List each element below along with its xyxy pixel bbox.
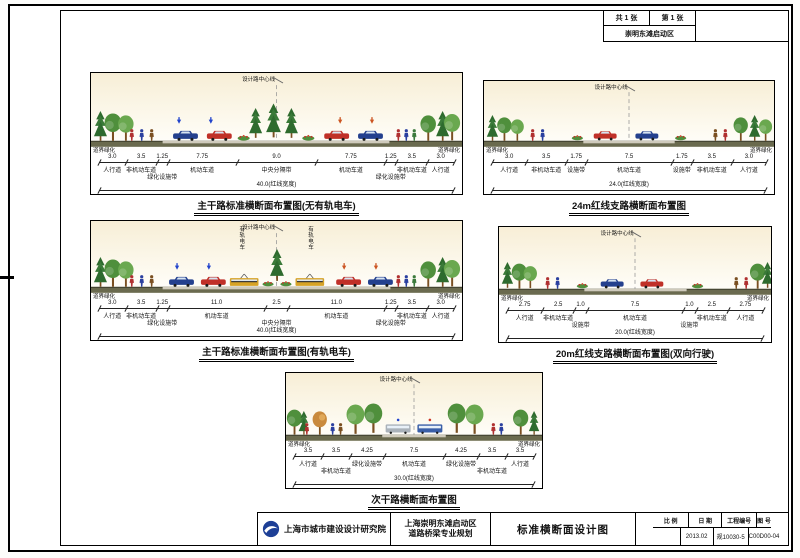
vehicles-right	[296, 274, 393, 287]
dim-label: 设施带	[673, 165, 691, 174]
dim-label: 设施带	[567, 165, 585, 174]
dim-segment: 3.0人行道	[427, 300, 454, 325]
dim-segment: 1.0设施带	[683, 302, 696, 327]
title-block: 上海市城市建设设计研究院 上海崇明东滩启动区 道路桥梁专业规划 标准横断面设计图…	[257, 512, 789, 546]
dim-segment: 4.25绿化设施带	[444, 448, 478, 473]
dim-value: 2.5	[708, 302, 716, 308]
total-dimension-line	[99, 190, 454, 191]
dim-label: 非机动车道	[543, 313, 573, 322]
company-cell: 上海市城市建设设计研究院	[258, 513, 391, 545]
total-width-label: 24.0(红线宽度)	[609, 179, 649, 188]
tram-label-left: 有轨电车	[238, 226, 244, 250]
dim-label: 机动车道	[339, 165, 363, 174]
dim-label: 人行道	[103, 311, 121, 320]
section-main-road-with-tram: 设计路中心线 有轨电车 有轨电车 道界绿化 道界绿化 3.0人行道3.5非机动车…	[90, 220, 463, 362]
dim-value: 1.75	[570, 154, 582, 160]
dim-label: 绿化设施带	[446, 459, 476, 468]
edge-greening-label-right: 道界绿化	[438, 292, 460, 300]
dim-segment: 3.5非机动车道	[322, 448, 350, 473]
dim-label: 非机动车道	[531, 165, 561, 174]
corner-empty-cell	[696, 10, 789, 42]
dim-value: 3.5	[408, 300, 416, 306]
dim-value: 3.0	[108, 300, 116, 306]
area-name-cell: 崇明东滩启动区	[604, 26, 695, 41]
total-width-row: 40.0(红线宽度)	[99, 179, 454, 192]
dimension-row: 3.0人行道3.5非机动车道1.75设施带7.5机动车道1.75设施带3.5非机…	[492, 154, 766, 179]
trees-right	[420, 111, 460, 141]
median-planting	[263, 249, 292, 286]
facility-strip-planting	[692, 283, 703, 288]
dim-segment: 3.5非机动车道	[396, 300, 427, 325]
centerline-label: 设计路中心线	[601, 229, 634, 237]
dim-label: 人行道	[432, 311, 450, 320]
edge-greening-label-right: 道界绿化	[518, 440, 540, 448]
total-width-label: 40.0(红线宽度)	[257, 179, 297, 188]
dim-value: 3.5	[516, 448, 524, 454]
dim-label: 非机动车道	[397, 165, 427, 174]
edge-greening-label-left: 道界绿化	[501, 294, 523, 302]
dim-value: 1.0	[576, 302, 584, 308]
diagram-box: 设计路中心线 道界绿化 道界绿化 2.75人行道2.5非机动车道1.0设施带7.…	[498, 226, 772, 343]
diagram-box: 设计路中心线 道界绿化 道界绿化 3.0人行道3.5非机动车道1.25绿化设施带…	[90, 72, 463, 195]
dim-segment: 3.5非机动车道	[396, 154, 427, 179]
facility-strip-planting	[675, 135, 686, 140]
scale-value	[645, 528, 681, 545]
section-title: 24m红线支路横断面布置图	[569, 198, 689, 216]
total-width-label: 20.0(红线宽度)	[615, 327, 655, 336]
pedestrians-right	[713, 129, 727, 141]
total-width-row: 20.0(红线宽度)	[507, 327, 763, 340]
dim-label: 人行道	[511, 459, 529, 468]
dim-segment: 1.25绿化设施带	[385, 300, 396, 325]
edge-greening-label-right: 道界绿化	[438, 146, 460, 154]
project-no-label: 工程编号	[722, 513, 757, 527]
dim-segment: 1.75设施带	[566, 154, 586, 179]
diagram-box: 设计路中心线 有轨电车 有轨电车 道界绿化 道界绿化 3.0人行道3.5非机动车…	[90, 220, 463, 341]
dim-segment: 4.25绿化设施带	[350, 448, 384, 473]
dim-value: 7.5	[631, 302, 639, 308]
dim-segment: 9.0中央分隔带	[237, 154, 317, 179]
section-title: 主干路标准横断面布置图(有轨电车)	[199, 344, 354, 362]
scale-label: 比 例	[653, 513, 689, 527]
dim-segment: 2.75人行道	[728, 302, 763, 327]
pedestrians-left	[530, 129, 544, 141]
edge-greening-label-left: 道界绿化	[93, 146, 115, 154]
centerline-label: 设计路中心线	[380, 375, 413, 383]
facility-strip-planting	[577, 283, 588, 288]
trees-right	[734, 115, 773, 141]
cross-section-illustration	[286, 373, 542, 447]
trees-right	[420, 257, 460, 287]
dim-label: 绿化设施带	[352, 459, 382, 468]
dimension-row: 3.0人行道3.5非机动车道1.25绿化设施带11.0机动车道2.5中央分隔带1…	[99, 300, 454, 325]
cross-section-illustration	[499, 227, 771, 301]
dim-segment: 3.0人行道	[427, 154, 454, 179]
dim-value: 2.5	[272, 300, 280, 306]
dim-label: 非机动车道	[697, 165, 727, 174]
dim-value: 4.25	[455, 448, 467, 454]
dim-value: 1.0	[685, 302, 693, 308]
facility-strip-planting	[572, 135, 583, 140]
dim-value: 3.5	[488, 448, 496, 454]
project-cell: 上海崇明东滩启动区 道路桥梁专业规划	[391, 513, 491, 545]
pedestrians-right	[734, 277, 748, 289]
dim-value: 3.0	[505, 154, 513, 160]
sheet-number-cell: 第 1 张	[650, 11, 695, 25]
edge-greening-label-right: 道界绿化	[747, 294, 769, 302]
drawing-no-label: 图 号	[757, 513, 771, 527]
dim-value: 3.5	[408, 154, 416, 160]
vehicles-left	[173, 131, 232, 141]
dim-label: 机动车道	[205, 311, 229, 320]
dim-segment: 11.0机动车道	[288, 300, 386, 325]
drawing-info-table: 比 例 日 期 工程编号 图 号 2013.02 规10030-5 C00D00…	[636, 513, 788, 545]
dim-label: 机动车道	[402, 459, 426, 468]
dim-value: 3.5	[137, 154, 145, 160]
dim-value: 7.5	[410, 448, 418, 454]
dim-segment: 3.0人行道	[99, 300, 126, 325]
dim-label: 人行道	[736, 313, 754, 322]
cross-section-illustration	[484, 81, 774, 153]
trees-right	[513, 410, 539, 435]
dim-label: 人行道	[299, 459, 317, 468]
dim-value: 3.0	[437, 300, 445, 306]
tram-label-right: 有轨电车	[306, 226, 312, 250]
dim-segment: 2.5非机动车道	[696, 302, 728, 327]
dim-value: 2.5	[554, 302, 562, 308]
total-dimension-line	[294, 484, 534, 485]
pedestrians-left	[130, 275, 154, 287]
company-name: 上海市城市建设设计研究院	[284, 523, 386, 535]
vehicles-left	[169, 274, 258, 287]
total-width-row: 40.0(红线宽度)	[99, 325, 454, 338]
scene: 设计路中心线 道界绿化 道界绿化	[286, 373, 542, 447]
dim-label: 人行道	[103, 165, 121, 174]
trees-right	[750, 262, 771, 289]
green-strip-trees-right	[448, 404, 484, 434]
corner-sheet-table: 共 1 张 第 1 张 崇明东滩启动区	[603, 10, 789, 42]
cross-section-illustration	[91, 221, 462, 299]
dim-segment: 3.0人行道	[492, 154, 526, 179]
dim-segment: 1.25绿化设施带	[157, 154, 168, 179]
section-main-road-no-tram: 设计路中心线 道界绿化 道界绿化 3.0人行道3.5非机动车道1.25绿化设施带…	[90, 72, 463, 216]
date-value: 2013.02	[681, 528, 714, 545]
dim-segment: 3.5非机动车道	[692, 154, 732, 179]
company-logo-icon	[262, 520, 280, 538]
dim-value: 11.0	[331, 300, 342, 306]
trees-left	[94, 257, 134, 287]
dim-value: 3.0	[437, 154, 445, 160]
centerline-label: 设计路中心线	[242, 75, 275, 83]
dim-value: 7.75	[345, 154, 357, 160]
dim-segment: 2.75人行道	[507, 302, 542, 327]
dim-value: 3.5	[137, 300, 145, 306]
section-branch-24m: 设计路中心线 道界绿化 道界绿化 3.0人行道3.5非机动车道1.75设施带7.…	[483, 80, 775, 216]
dim-segment: 3.5人行道	[294, 448, 322, 473]
cross-section-illustration	[91, 73, 462, 153]
dim-value: 2.75	[740, 302, 752, 308]
dim-segment: 1.25绿化设施带	[385, 154, 396, 179]
dim-value: 1.75	[676, 154, 688, 160]
dim-value: 3.0	[745, 154, 753, 160]
dim-segment: 11.0机动车道	[168, 300, 266, 325]
dim-segment: 1.75设施带	[672, 154, 692, 179]
vehicles	[601, 279, 664, 288]
dim-segment: 2.5中央分隔带	[265, 300, 287, 325]
dim-label: 非机动车道	[697, 313, 727, 322]
edge-greening-label-left: 道界绿化	[486, 146, 508, 154]
edge-greening-label-right: 道界绿化	[750, 146, 772, 154]
dim-label: 非机动车道	[397, 311, 427, 320]
dim-label: 机动车道	[190, 165, 214, 174]
dim-segment: 3.5人行道	[506, 448, 534, 473]
section-title: 20m红线支路横断面布置图(双向行驶)	[553, 346, 717, 364]
scene: 设计路中心线 道界绿化 道界绿化	[91, 73, 462, 153]
dim-value: 3.5	[542, 154, 550, 160]
trees-left	[94, 111, 134, 141]
scene: 设计路中心线 有轨电车 有轨电车 道界绿化 道界绿化	[91, 221, 462, 299]
pedestrians-left	[130, 129, 154, 141]
pedestrians-right	[396, 129, 416, 141]
dim-value: 4.25	[361, 448, 373, 454]
dimension-row: 3.0人行道3.5非机动车道1.25绿化设施带7.75机动车道9.0中央分隔带7…	[99, 154, 454, 179]
section-title: 次干路横断面布置图	[368, 492, 460, 510]
total-width-row: 30.0(红线宽度)	[294, 473, 534, 486]
diagram-box: 设计路中心线 道界绿化 道界绿化 3.0人行道3.5非机动车道1.75设施带7.…	[483, 80, 775, 195]
binding-mark	[0, 276, 14, 279]
total-sheets-cell: 共 1 张	[604, 11, 650, 25]
dim-value: 7.5	[625, 154, 633, 160]
total-dimension-line	[99, 336, 454, 337]
dim-segment: 2.5非机动车道	[542, 302, 574, 327]
edge-greening-label-left: 道界绿化	[288, 440, 310, 448]
dim-value: 3.5	[708, 154, 716, 160]
dim-label: 人行道	[432, 165, 450, 174]
dim-label: 人行道	[516, 313, 534, 322]
dim-segment: 7.5机动车道	[384, 448, 444, 473]
edge-greening-label-left: 道界绿化	[93, 292, 115, 300]
dim-segment: 1.25绿化设施带	[157, 300, 168, 325]
dim-value: 3.5	[304, 448, 312, 454]
diagram-box: 设计路中心线 道界绿化 道界绿化 3.5人行道3.5非机动车道4.25绿化设施带…	[285, 372, 543, 489]
dim-segment: 3.5非机动车道	[478, 448, 506, 473]
dim-segment: 3.5非机动车道	[526, 154, 566, 179]
dimension-row: 3.5人行道3.5非机动车道4.25绿化设施带7.5机动车道4.25绿化设施带3…	[294, 448, 534, 473]
section-secondary-road: 设计路中心线 道界绿化 道界绿化 3.5人行道3.5非机动车道4.25绿化设施带…	[285, 372, 543, 527]
dim-segment: 1.0设施带	[574, 302, 587, 327]
pedestrians-right	[491, 423, 503, 435]
centerline-label: 设计路中心线	[242, 223, 275, 231]
pedestrians-right	[396, 275, 416, 287]
dim-segment: 3.0人行道	[732, 154, 766, 179]
project-line1: 上海崇明东滩启动区	[405, 519, 477, 529]
project-no-value: 规10030-5	[714, 528, 749, 545]
total-width-label: 30.0(红线宽度)	[394, 473, 434, 482]
dim-segment: 3.0人行道	[99, 154, 126, 179]
scene: 设计路中心线 道界绿化 道界绿化	[484, 81, 774, 153]
dim-segment: 7.75机动车道	[168, 154, 237, 179]
total-dimension-line	[507, 338, 763, 339]
scene: 设计路中心线 道界绿化 道界绿化	[499, 227, 771, 301]
dim-label: 人行道	[500, 165, 518, 174]
total-dimension-line	[492, 190, 766, 191]
project-line2: 道路桥梁专业规划	[409, 529, 473, 539]
dim-value: 3.5	[332, 448, 340, 454]
median-planting	[238, 104, 315, 141]
green-strip-trees-left	[347, 404, 383, 434]
dim-value: 9.0	[272, 154, 280, 160]
trees-left	[502, 262, 537, 289]
section-title: 主干路标准横断面布置图(无有轨电车)	[194, 198, 358, 216]
lane-arrows-left	[175, 263, 211, 270]
lane-arrows-left	[177, 117, 213, 124]
dimension-row: 2.75人行道2.5非机动车道1.0设施带7.5机动车道1.0设施带2.5非机动…	[507, 302, 763, 327]
lane-arrows-right	[342, 263, 378, 270]
trees-left	[487, 115, 524, 141]
pedestrians-left	[545, 277, 559, 289]
dim-label: 机动车道	[324, 311, 348, 320]
dim-label: 机动车道	[623, 313, 647, 322]
lane-arrows-right	[338, 117, 374, 124]
centerline-label: 设计路中心线	[595, 83, 628, 91]
section-branch-20m: 设计路中心线 道界绿化 道界绿化 2.75人行道2.5非机动车道1.0设施带7.…	[498, 226, 772, 364]
vehicles	[594, 131, 659, 140]
dim-value: 3.0	[108, 154, 116, 160]
dim-label: 机动车道	[617, 165, 641, 174]
dim-label: 中央分隔带	[261, 165, 291, 174]
total-width-row: 24.0(红线宽度)	[492, 179, 766, 192]
total-width-label: 40.0(红线宽度)	[257, 325, 297, 334]
date-label: 日 期	[689, 513, 722, 527]
drawing-no-value: C00D00-04	[749, 528, 780, 545]
vehicles-right	[324, 131, 383, 141]
drawing-title-cell: 标准横断面设计图	[491, 513, 636, 545]
dim-value: 11.0	[211, 300, 222, 306]
dim-label: 人行道	[740, 165, 758, 174]
dim-segment: 7.5机动车道	[586, 154, 672, 179]
dim-value: 7.75	[196, 154, 208, 160]
dim-value: 2.75	[519, 302, 531, 308]
dim-segment: 7.5机动车道	[587, 302, 683, 327]
